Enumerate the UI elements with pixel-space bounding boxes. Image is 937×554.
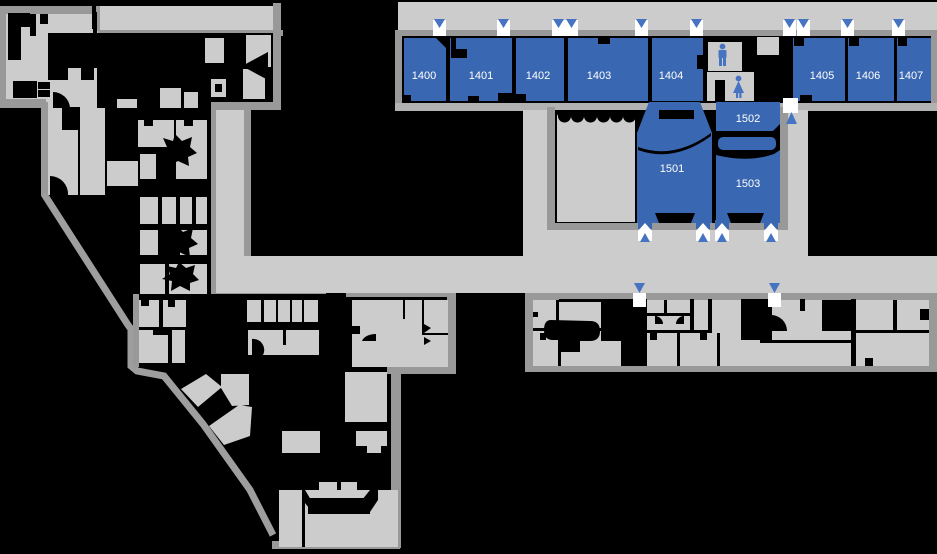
svg-text:1404: 1404 — [659, 70, 683, 82]
svg-text:1503: 1503 — [736, 178, 760, 190]
svg-text:1403: 1403 — [587, 70, 611, 82]
svg-text:1501: 1501 — [660, 163, 684, 175]
svg-text:1405: 1405 — [810, 70, 834, 82]
svg-text:1406: 1406 — [856, 70, 880, 82]
svg-text:1502: 1502 — [736, 113, 760, 125]
svg-text:1402: 1402 — [526, 70, 550, 82]
svg-text:1400: 1400 — [412, 70, 436, 82]
svg-text:1407: 1407 — [899, 70, 923, 82]
svg-text:1401: 1401 — [469, 70, 493, 82]
